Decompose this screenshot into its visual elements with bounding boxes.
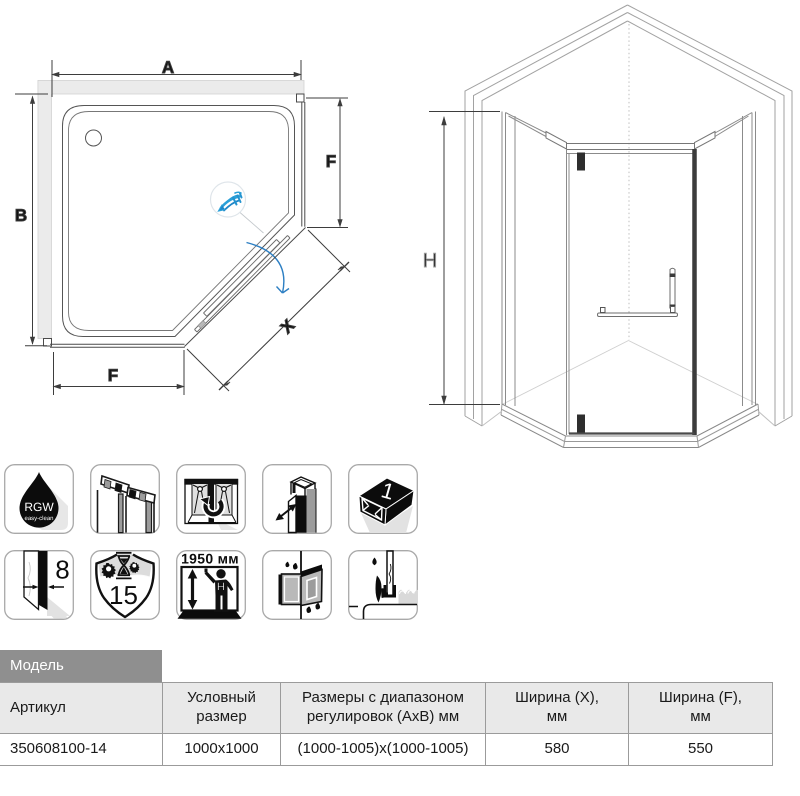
svg-text:easy-clean: easy-clean: [24, 515, 53, 522]
svg-text:1950 мм: 1950 мм: [181, 551, 239, 567]
svg-text:A: A: [162, 58, 174, 77]
svg-text:H: H: [423, 250, 437, 272]
svg-text:8: 8: [55, 555, 69, 585]
svg-text:B: B: [15, 206, 27, 225]
svg-text:F: F: [326, 152, 336, 171]
svg-text:F: F: [108, 366, 118, 385]
svg-text:X: X: [277, 315, 299, 337]
svg-text:15: 15: [109, 580, 138, 610]
svg-text:H: H: [217, 580, 226, 594]
svg-text:RGW: RGW: [24, 500, 54, 514]
